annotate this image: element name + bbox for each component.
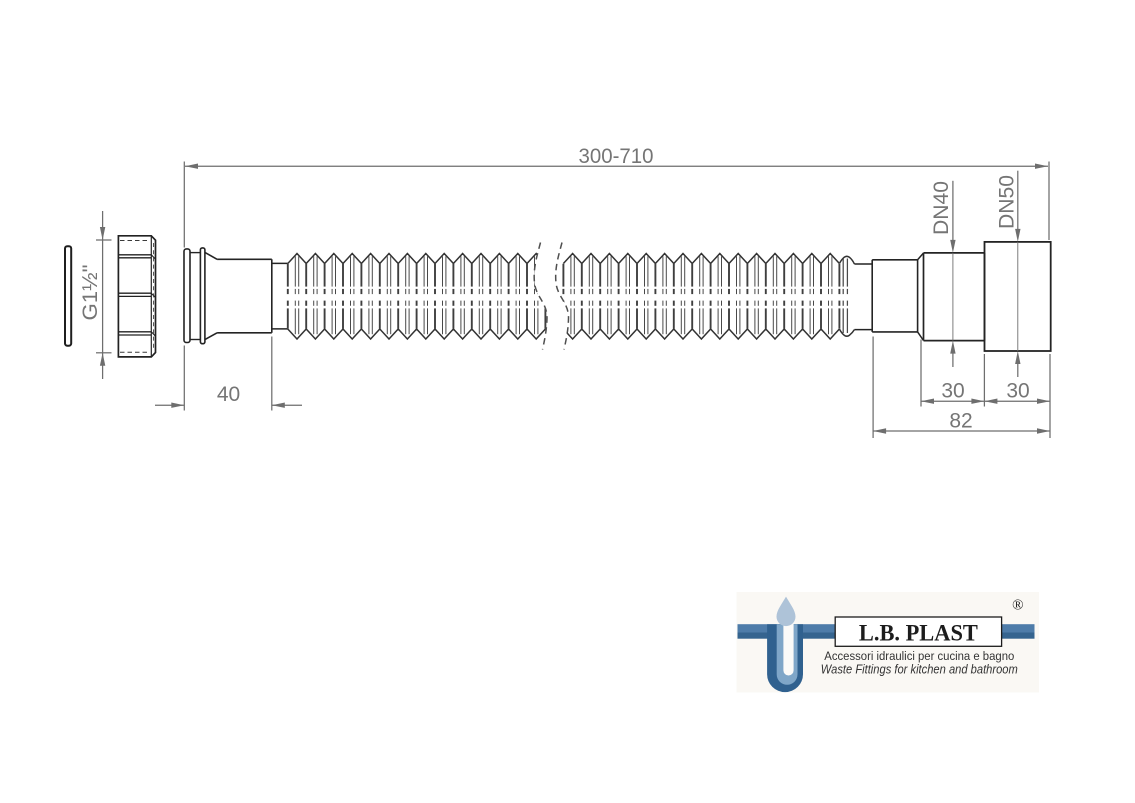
svg-text:300-710: 300-710 xyxy=(579,145,654,168)
svg-text:DN50: DN50 xyxy=(995,175,1018,229)
svg-text:30: 30 xyxy=(1006,380,1029,403)
svg-text:40: 40 xyxy=(217,383,240,406)
svg-text:30: 30 xyxy=(941,380,964,403)
svg-text:®: ® xyxy=(1012,598,1023,614)
svg-text:DN40: DN40 xyxy=(930,181,953,235)
svg-text:Accessori idraulici per cucina: Accessori idraulici per cucina e bagno xyxy=(824,649,1014,663)
svg-text:Waste Fittings for kitchen and: Waste Fittings for kitchen and bathroom xyxy=(821,662,1018,676)
svg-text:G1½": G1½" xyxy=(79,265,102,321)
svg-text:L.B. PLAST: L.B. PLAST xyxy=(859,621,978,646)
svg-text:82: 82 xyxy=(949,409,972,432)
